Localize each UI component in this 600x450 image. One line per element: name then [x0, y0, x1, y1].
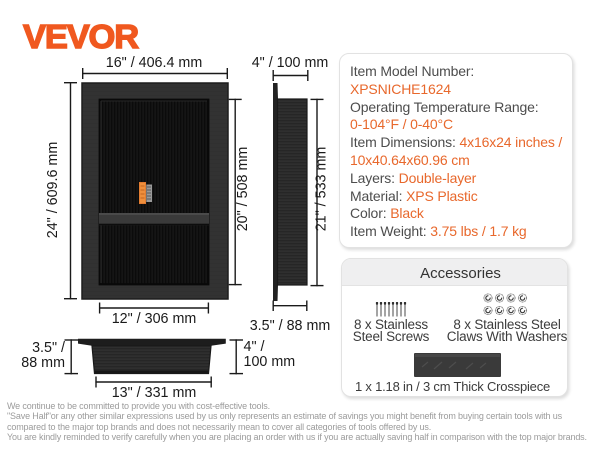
- svg-text:20" / 508 mm: 20" / 508 mm: [235, 147, 251, 232]
- svg-text:12" / 306 mm: 12" / 306 mm: [112, 311, 197, 327]
- svg-text:3.5" /: 3.5" /: [32, 340, 65, 356]
- svg-text:21" / 533 mm: 21" / 533 mm: [314, 147, 330, 232]
- svg-text:88 mm: 88 mm: [21, 355, 65, 371]
- svg-text:4" / 100 mm: 4" / 100 mm: [252, 55, 329, 71]
- svg-text:100 mm: 100 mm: [244, 354, 296, 370]
- svg-text:24" / 609.6 mm: 24" / 609.6 mm: [45, 142, 61, 238]
- svg-text:4" /: 4" /: [244, 339, 265, 355]
- svg-text:3.5" / 88 mm: 3.5" / 88 mm: [250, 318, 331, 334]
- svg-text:13" / 331 mm: 13" / 331 mm: [112, 385, 197, 401]
- svg-text:16" / 406.4 mm: 16" / 406.4 mm: [106, 55, 202, 71]
